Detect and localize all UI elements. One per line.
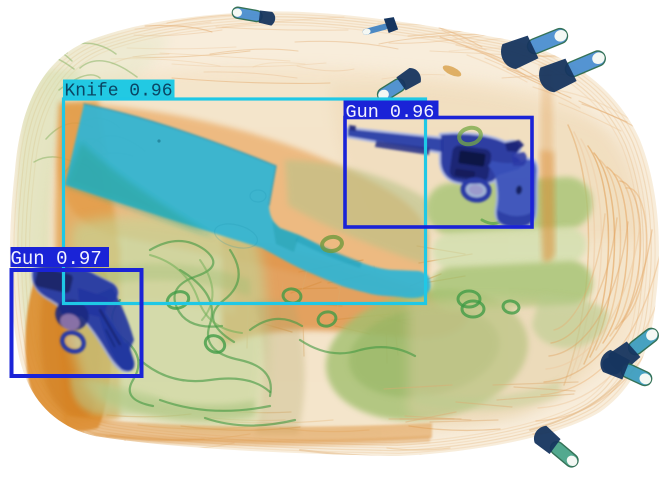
svg-text:Gun 0.96: Gun 0.96	[346, 102, 435, 123]
svg-text:Knife 0.96: Knife 0.96	[65, 82, 173, 102]
svg-text:Gun 0.97: Gun 0.97	[11, 248, 102, 270]
